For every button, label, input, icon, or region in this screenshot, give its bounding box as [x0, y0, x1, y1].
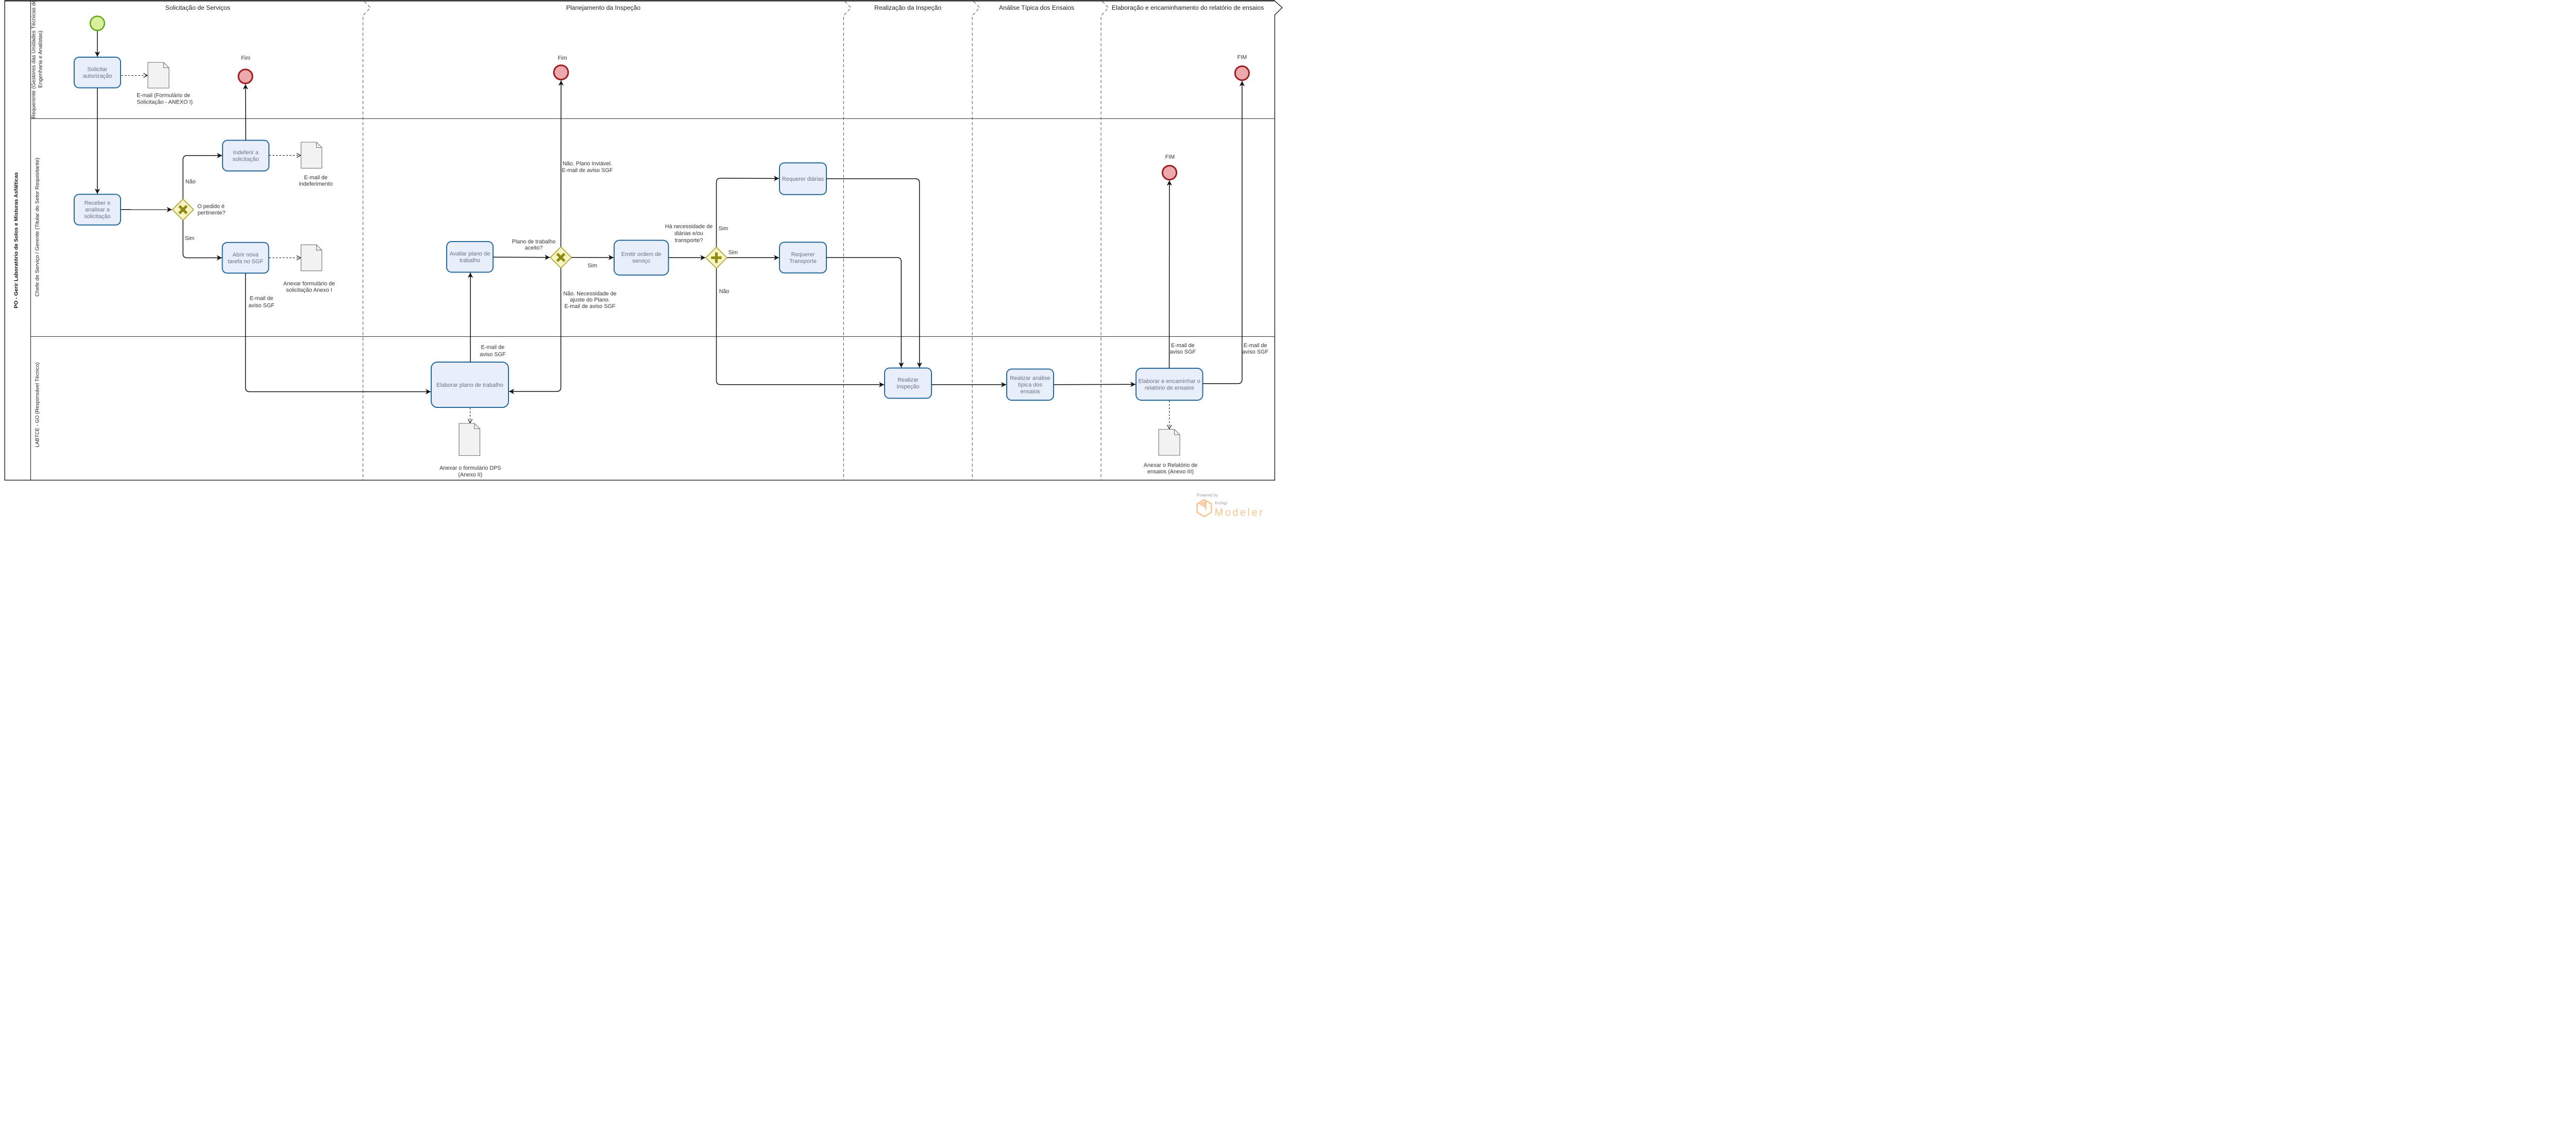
svg-text:Sim: Sim — [185, 235, 195, 242]
svg-text:PO - Gerir Laboratório de Solo: PO - Gerir Laboratório de Solos e Mistur… — [13, 172, 20, 309]
svg-text:Anexar formulário desolicitaçã: Anexar formulário desolicitação Anexo I — [283, 281, 335, 294]
svg-text:Não: Não — [719, 288, 730, 295]
svg-text:Não. Plano Inviável.E-mail de: Não. Plano Inviável.E-mail de aviso SGF — [562, 161, 613, 174]
svg-text:bızagı: bızagı — [1215, 501, 1228, 505]
svg-text:E-mail deaviso SGF: E-mail deaviso SGF — [1170, 343, 1196, 355]
svg-text:Anexar o Relatório deensaios (: Anexar o Relatório deensaios (Anexo III) — [1144, 463, 1197, 475]
svg-text:E-mail deaviso SGF: E-mail deaviso SGF — [248, 296, 275, 309]
svg-text:E-mail deaviso SGF: E-mail deaviso SGF — [1242, 343, 1268, 355]
svg-text:Sim: Sim — [728, 250, 738, 256]
svg-text:Requerer diárias: Requerer diárias — [782, 176, 824, 182]
svg-text:Há necessidade dediárias e/out: Há necessidade dediárias e/outransporte? — [665, 224, 713, 244]
svg-text:Receber eanalisar asolicitação: Receber eanalisar asolicitação — [84, 200, 110, 219]
svg-text:Planejamento da Inspeção: Planejamento da Inspeção — [566, 4, 641, 11]
svg-text:Anexar o formulário DPS(Anexo: Anexar o formulário DPS(Anexo II) — [439, 465, 501, 478]
svg-text:Realizarinspeção: Realizarinspeção — [896, 377, 919, 390]
svg-text:Sim: Sim — [719, 226, 728, 232]
svg-text:Indeferir asolicitação: Indeferir asolicitação — [232, 149, 259, 162]
svg-text:Fim: Fim — [558, 55, 567, 61]
svg-text:Não: Não — [185, 179, 196, 185]
svg-text:RequererTransporte: RequererTransporte — [789, 251, 817, 264]
svg-text:FIM: FIM — [1238, 54, 1247, 60]
svg-text:Elaborar plano de trabalho: Elaborar plano de trabalho — [436, 382, 503, 388]
svg-text:Fim: Fim — [241, 55, 250, 61]
svg-text:O pedido épertinente?: O pedido épertinente? — [197, 203, 225, 216]
svg-text:Chefe de Serviço / Gerente (Ti: Chefe de Serviço / Gerente (Titular do S… — [34, 158, 40, 297]
svg-text:FIM: FIM — [1165, 154, 1175, 160]
svg-text:Modeler: Modeler — [1215, 507, 1265, 518]
svg-text:Engenharia e Analistas): Engenharia e Analistas) — [38, 31, 44, 88]
svg-text:Realização da Inspeção: Realização da Inspeção — [874, 4, 941, 11]
svg-text:Análise Típica dos Ensaios: Análise Típica dos Ensaios — [999, 4, 1074, 11]
svg-text:E-mail (Formulário deSolicitaç: E-mail (Formulário deSolicitação - ANEXO… — [137, 92, 193, 105]
svg-text:LABTCE - GO (Responsável Técni: LABTCE - GO (Responsável Técnico) — [35, 363, 40, 448]
svg-text:Abrir novatarefa no SGF: Abrir novatarefa no SGF — [228, 252, 263, 265]
svg-text:Plano de trabalhoaceito?: Plano de trabalhoaceito? — [512, 238, 556, 251]
svg-text:Elaboração e encaminhamento do: Elaboração e encaminhamento do relatório… — [1112, 4, 1264, 11]
svg-text:Requerente (Gestores das Unida: Requerente (Gestores das Unidades Técnic… — [31, 0, 37, 118]
svg-text:E-mail deaviso SGF: E-mail deaviso SGF — [480, 345, 506, 358]
svg-text:Solicitação de Serviços: Solicitação de Serviços — [165, 4, 230, 11]
svg-text:E-mail deindeferimento: E-mail deindeferimento — [299, 175, 332, 187]
svg-text:Não. Necessidade deajuste do P: Não. Necessidade deajuste do Plano.E-mai… — [563, 291, 616, 310]
svg-text:Sim: Sim — [587, 263, 597, 269]
svg-text:Elaborar e encaminhar orelatór: Elaborar e encaminhar orelatório de ensa… — [1138, 378, 1200, 391]
svg-text:Powered by: Powered by — [1197, 493, 1218, 498]
